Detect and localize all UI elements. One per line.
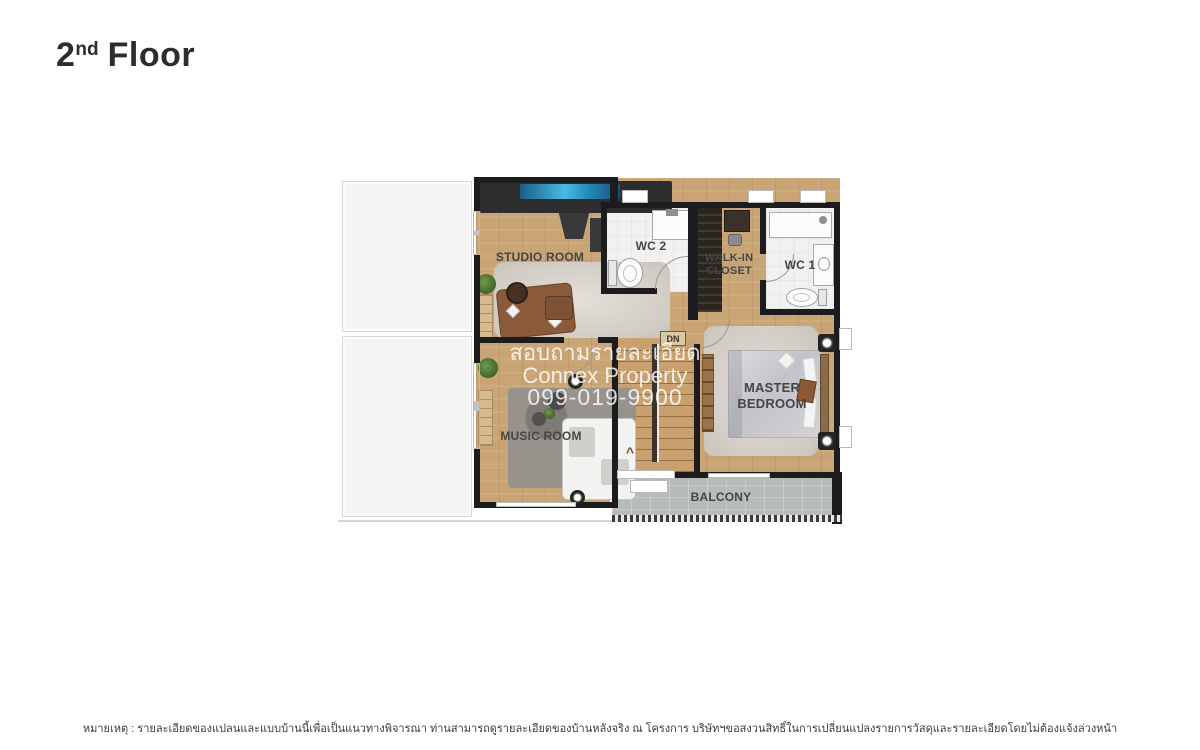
wall-segment — [601, 288, 657, 294]
floor-word: Floor — [108, 36, 195, 74]
wall-segment — [760, 309, 840, 315]
room-label-wc1: WC 1 — [774, 258, 826, 272]
studio-shelf — [478, 294, 493, 342]
master-glass-door — [708, 473, 770, 478]
studio-ottoman — [545, 296, 573, 320]
wall-segment — [474, 177, 618, 183]
studio-coffee-table — [506, 282, 528, 304]
wc1-shower — [769, 212, 832, 238]
wall-segment — [760, 208, 766, 254]
window — [622, 190, 648, 203]
watermark-line-3: 099-019-9900 — [440, 387, 770, 407]
balcony-window-box — [630, 480, 668, 493]
balcony-hatch-edge — [612, 515, 842, 522]
roof-area-upper — [342, 181, 472, 332]
page: 2ndFloor DN ^ — [0, 0, 1200, 750]
wc1-toilet-seat — [793, 293, 810, 302]
window — [839, 328, 852, 350]
wall-light-icon-bottom — [818, 432, 836, 450]
wc2-toilet-bowl — [617, 258, 643, 288]
watermark: สอบถามรายละเอียด Connex Property 099-019… — [440, 343, 770, 407]
wall-light-icon-top — [818, 334, 836, 352]
wc2-shower — [652, 210, 690, 240]
wall-segment — [474, 177, 480, 211]
page-title: 2ndFloor — [56, 36, 195, 75]
wall-segment — [688, 202, 698, 294]
wc1-shower-head-icon — [819, 216, 827, 224]
walkin-dresser — [724, 210, 750, 232]
window — [496, 502, 576, 507]
disclaimer-text: หมายเหตุ : รายละเอียดของแปลนและแบบบ้านนี… — [0, 719, 1200, 737]
wall-segment — [688, 288, 698, 320]
ordinal-superscript: nd — [75, 39, 98, 60]
floor-number: 2 — [56, 36, 75, 74]
stairs-direction-arrow: ^ — [622, 444, 638, 458]
room-label-wc2: WC 2 — [624, 239, 678, 253]
window — [748, 190, 774, 203]
balcony-sliding-door — [617, 470, 675, 479]
window — [473, 211, 480, 255]
wc2-toilet-tank — [608, 260, 617, 286]
wc2-toilet-seat — [623, 265, 637, 282]
wall-segment — [601, 202, 607, 294]
wc1-toilet-bowl — [786, 288, 818, 307]
room-label-music: MUSIC ROOM — [491, 429, 591, 443]
window — [839, 426, 852, 448]
room-label-walkin: WALK-IN CLOSET — [696, 252, 762, 278]
room-label-balcony: BALCONY — [681, 490, 761, 504]
window — [800, 190, 826, 203]
master-headboard — [820, 354, 829, 436]
wc1-toilet-tank — [818, 289, 827, 306]
tv-screen-icon — [520, 184, 620, 199]
watermark-line-1: สอบถามรายละเอียด — [440, 343, 770, 363]
watermark-line-2: Connex Property — [440, 366, 770, 386]
room-label-studio: STUDIO ROOM — [490, 250, 590, 264]
walkin-stool — [728, 234, 742, 246]
wall-segment — [474, 449, 480, 508]
wc2-shower-head-icon — [666, 209, 678, 216]
